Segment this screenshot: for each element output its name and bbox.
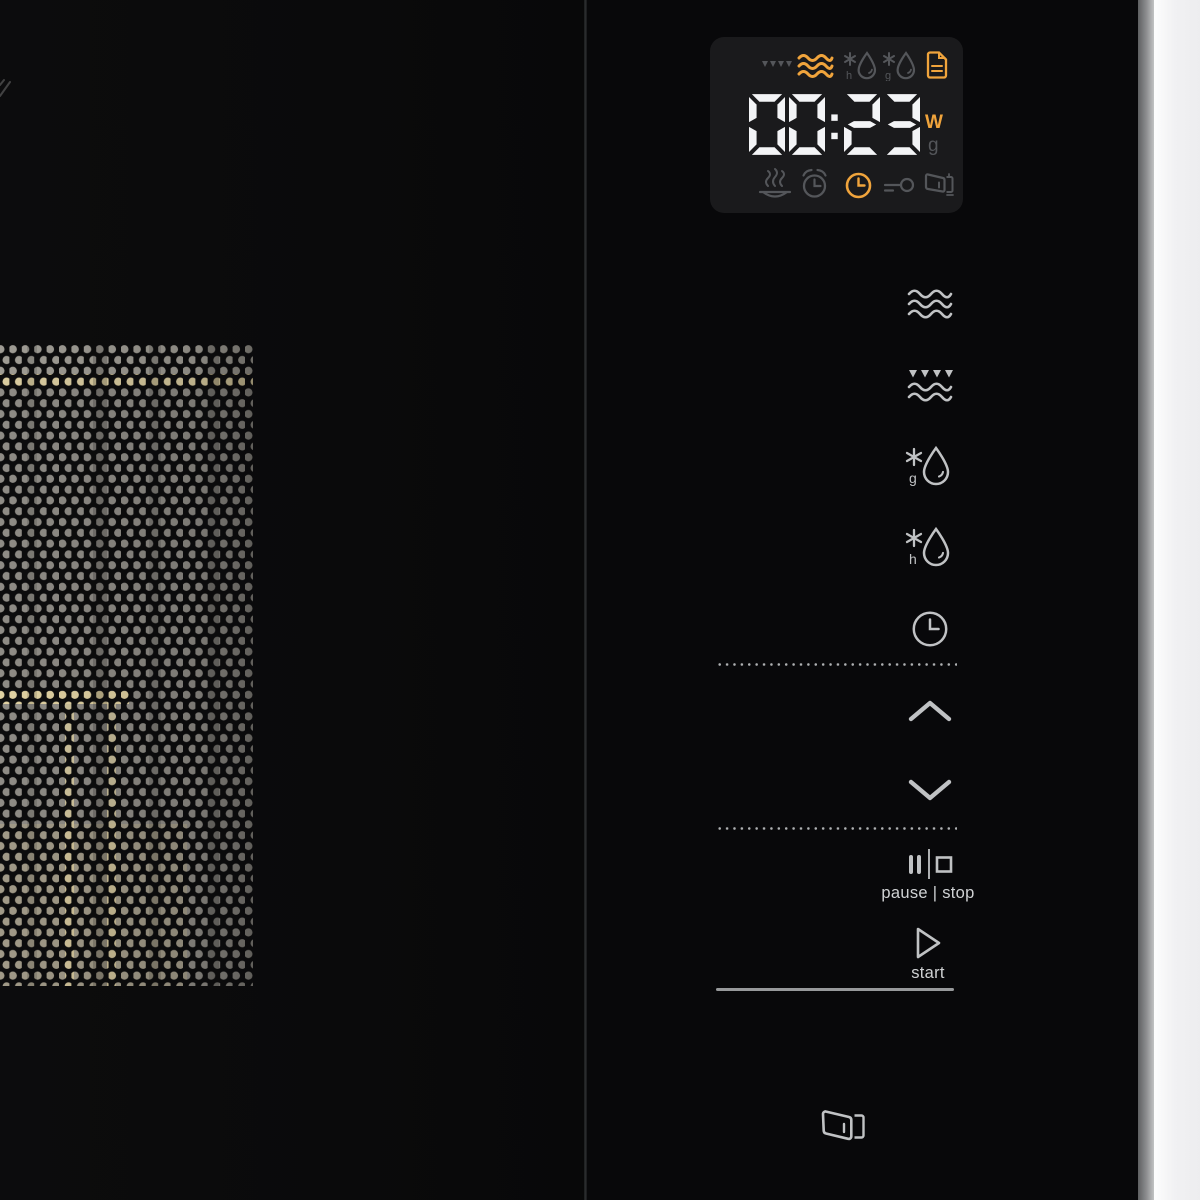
door-open-button[interactable] bbox=[816, 1106, 870, 1152]
oven-door bbox=[0, 0, 584, 1200]
start-label: start bbox=[818, 964, 1038, 983]
control-panel: h g W g bbox=[587, 0, 1138, 1200]
defrost-time-indicator: h bbox=[843, 51, 877, 81]
defrost-weight-button[interactable]: g bbox=[905, 445, 951, 489]
start-icon bbox=[915, 926, 942, 960]
start-button[interactable] bbox=[915, 926, 943, 962]
door-reflection bbox=[0, 72, 14, 102]
separator-dotted-upper bbox=[716, 663, 957, 666]
defrost-time-button[interactable]: h bbox=[905, 526, 951, 570]
pause-stop-label: pause | stop bbox=[818, 884, 1038, 903]
door-mesh bbox=[0, 344, 253, 986]
clock-indicator bbox=[845, 172, 872, 199]
child-lock-indicator bbox=[883, 176, 915, 196]
time-display bbox=[749, 94, 920, 155]
pause-stop-icon bbox=[905, 847, 955, 881]
clock-button[interactable] bbox=[911, 610, 949, 648]
timer-indicator bbox=[799, 168, 830, 200]
cabinet-side bbox=[1154, 0, 1200, 1200]
defrost-weight-indicator: g bbox=[882, 51, 916, 81]
grill-button[interactable] bbox=[907, 369, 953, 403]
door-indicator bbox=[922, 171, 956, 200]
gram-unit-label: g bbox=[928, 136, 939, 156]
svg-text:h: h bbox=[846, 70, 852, 81]
separator-solid bbox=[716, 988, 954, 991]
microwave-button[interactable] bbox=[907, 288, 953, 322]
svg-text:g: g bbox=[885, 70, 891, 81]
svg-text:h: h bbox=[909, 551, 917, 567]
microwave-indicator bbox=[797, 53, 834, 80]
separator-dotted-lower bbox=[716, 827, 957, 830]
keep-warm-indicator bbox=[758, 168, 792, 200]
watt-unit-label: W bbox=[925, 113, 943, 133]
up-button[interactable] bbox=[908, 700, 952, 722]
svg-text:g: g bbox=[909, 470, 917, 486]
auto-program-indicator bbox=[925, 51, 949, 80]
down-button[interactable] bbox=[908, 779, 952, 801]
cabinet-edge-trim bbox=[1138, 0, 1154, 1200]
grill-indicator bbox=[762, 60, 792, 70]
microwave-front: h g W g bbox=[0, 0, 1200, 1200]
